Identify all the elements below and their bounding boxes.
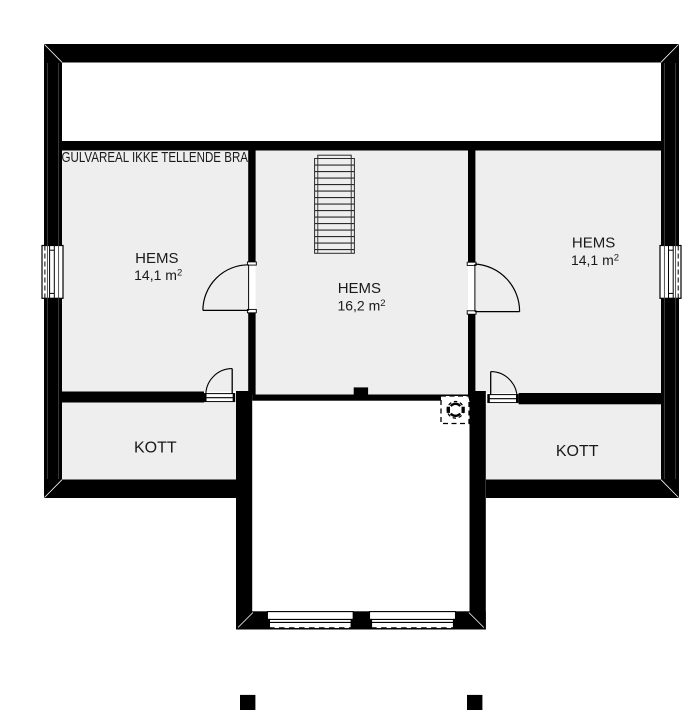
svg-text:14,1 m2: 14,1 m2 [134,267,182,283]
svg-text:14,1 m2: 14,1 m2 [571,252,619,268]
svg-text:HEMS: HEMS [338,280,381,297]
svg-text:KOTT: KOTT [556,443,599,460]
svg-text:GULVAREAL IKKE TELLENDE BRA: GULVAREAL IKKE TELLENDE BRA [62,150,249,166]
svg-text:KOTT: KOTT [134,439,177,456]
svg-text:HEMS: HEMS [572,235,615,252]
svg-text:HEMS: HEMS [135,250,178,267]
svg-text:16,2 m2: 16,2 m2 [337,298,385,314]
